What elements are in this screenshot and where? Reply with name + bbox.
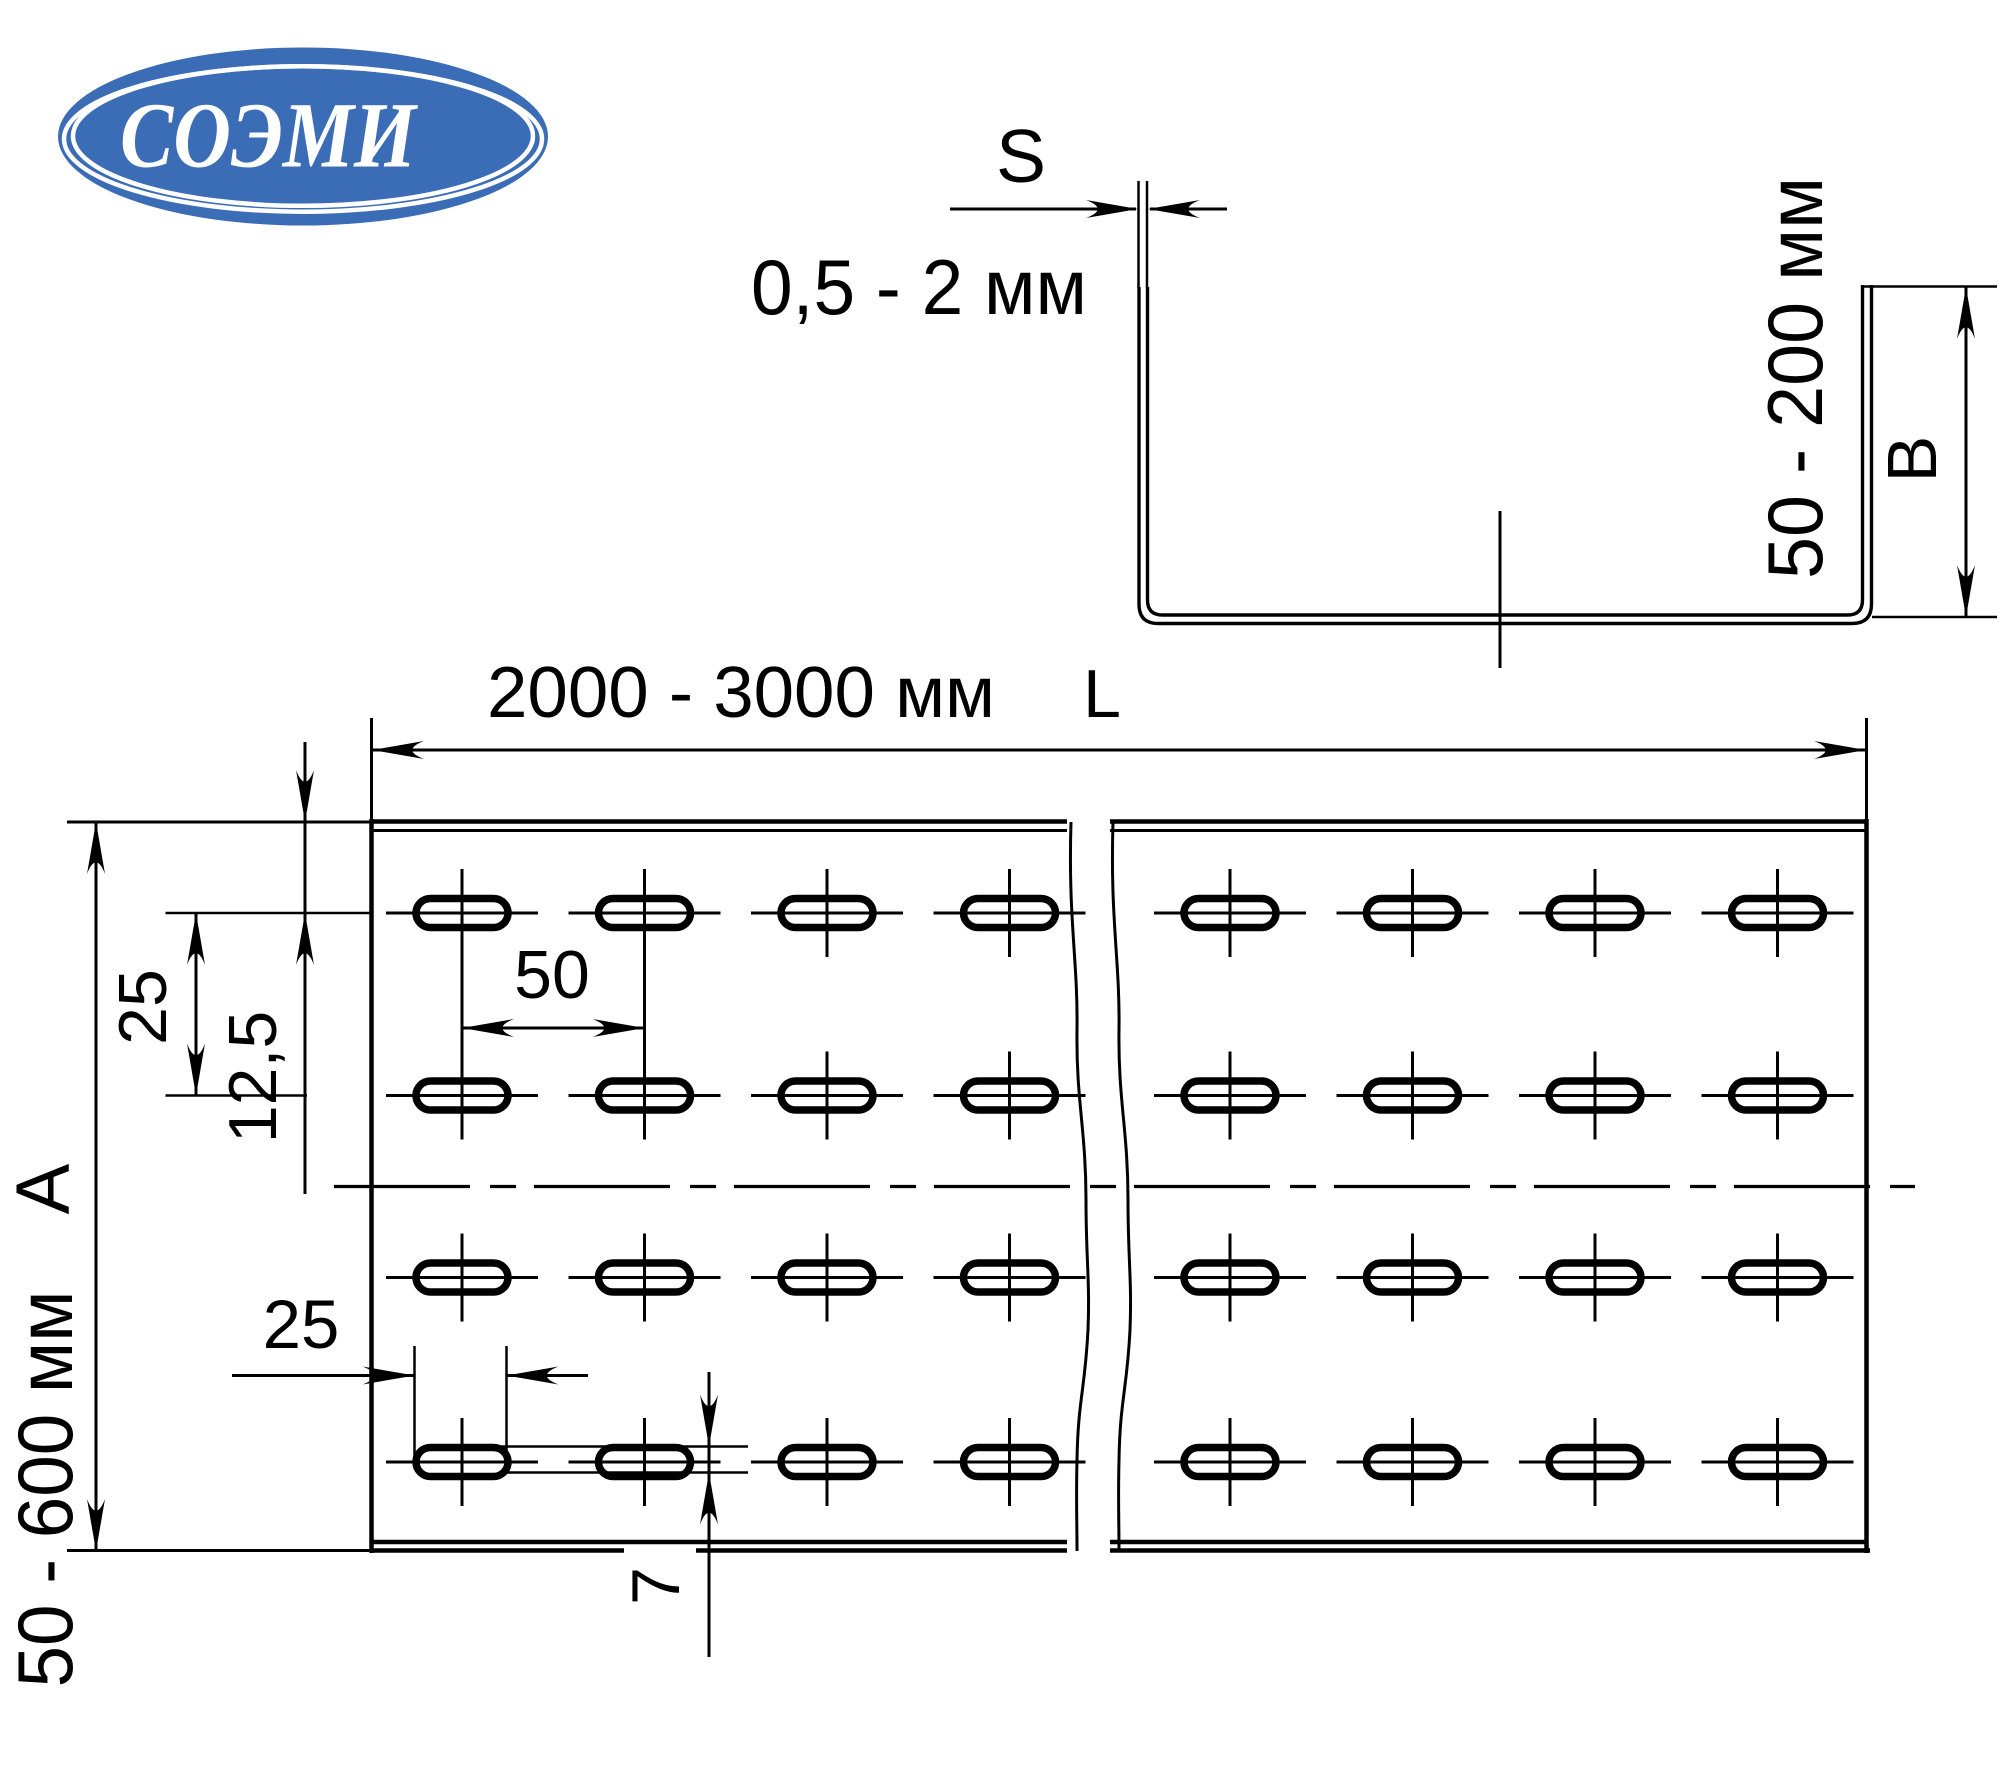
svg-text:50 - 200 мм: 50 - 200 мм	[1751, 177, 1839, 579]
svg-text:50: 50	[514, 937, 590, 1013]
svg-text:B: B	[1873, 436, 1951, 483]
svg-text:12,5: 12,5	[215, 1011, 291, 1143]
svg-text:L: L	[1083, 656, 1121, 732]
svg-text:50 - 600 мм: 50 - 600 мм	[1, 1291, 89, 1688]
svg-text:7: 7	[618, 1567, 694, 1605]
svg-text:СОЭМИ: СОЭМИ	[120, 85, 418, 188]
svg-text:2000 - 3000 мм: 2000 - 3000 мм	[487, 653, 995, 733]
svg-text:0,5 - 2 мм: 0,5 - 2 мм	[751, 243, 1087, 331]
svg-text:S: S	[996, 114, 1046, 198]
svg-text:25: 25	[263, 1286, 340, 1363]
svg-text:A: A	[1, 1163, 86, 1214]
svg-text:25: 25	[105, 969, 181, 1045]
